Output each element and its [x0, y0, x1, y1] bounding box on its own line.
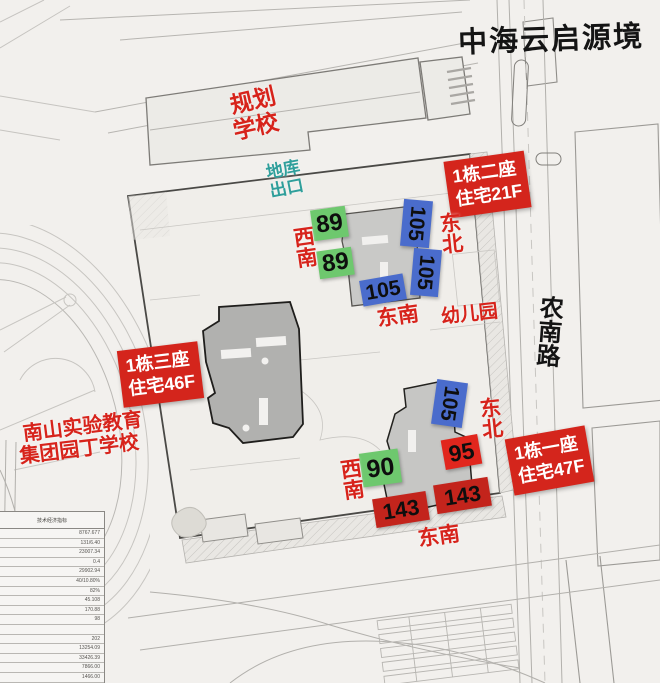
stats-table-row: 7866.00: [0, 663, 104, 673]
direction-upper-southwest: 西南: [289, 225, 318, 270]
stats-table-row: 82%: [0, 587, 104, 597]
unit-box-105-b: 105: [410, 248, 442, 297]
unit-box-90: 90: [359, 448, 402, 487]
stats-table-row: 98: [0, 615, 104, 625]
tower3-tag: 1栋三座 住宅46F: [117, 341, 204, 407]
unit-value: 89: [321, 249, 351, 276]
stats-table-row: 23007.34: [0, 548, 104, 558]
unit-value: 89: [315, 210, 345, 237]
unit-value: 105: [437, 385, 463, 423]
unit-value: 143: [443, 482, 483, 509]
unit-box-105-a: 105: [400, 199, 433, 248]
stats-table-row: 1466.00: [0, 673, 104, 683]
stats-table-row: 29902.94: [0, 567, 104, 577]
stats-table: 技术经济指标 8767.677131/6.4023007.340.429902.…: [0, 511, 105, 683]
unit-value: 105: [405, 205, 429, 242]
unit-value: 105: [414, 254, 438, 291]
tower2-tag: 1栋二座 住宅21F: [443, 151, 531, 219]
direction-upper-northeast: 东北: [436, 211, 464, 255]
stats-table-row: 0.4: [0, 558, 104, 568]
road-name-label: 农南路: [530, 294, 564, 368]
unit-value: 143: [381, 496, 421, 523]
stats-table-row: 45.108: [0, 596, 104, 606]
stats-table-row: 202: [0, 635, 104, 645]
unit-value: 90: [365, 454, 396, 483]
stats-table-row: 33426.39: [0, 654, 104, 664]
building-tower3-footprint: [203, 302, 303, 443]
unit-box-89-a: 89: [310, 206, 349, 242]
unit-value: 95: [447, 438, 476, 465]
unit-value: 105: [364, 277, 402, 304]
direction-lower-northeast: 东北: [476, 396, 504, 440]
stats-table-row: 170.88: [0, 606, 104, 616]
stats-table-row: [0, 625, 104, 635]
unit-box-105-d: 105: [431, 379, 468, 428]
stats-table-row: 13254.09: [0, 644, 104, 654]
stats-table-rows: 8767.677131/6.4023007.340.429902.9440/10…: [0, 529, 104, 683]
site-plan-page: 技术经济指标 8767.677131/6.4023007.340.429902.…: [0, 0, 660, 683]
stats-table-row: 8767.677: [0, 529, 104, 539]
unit-box-89-b: 89: [316, 247, 355, 280]
direction-lower-southwest: 西南: [336, 457, 365, 502]
stats-table-row: 131/6.40: [0, 539, 104, 549]
project-title: 中海云启源境: [457, 13, 644, 61]
garage-exit-label: 地库 出口: [265, 158, 306, 201]
stats-table-header: 技术经济指标: [0, 512, 104, 529]
stats-table-row: 40/10.80%: [0, 577, 104, 587]
unit-box-95: 95: [441, 434, 483, 470]
